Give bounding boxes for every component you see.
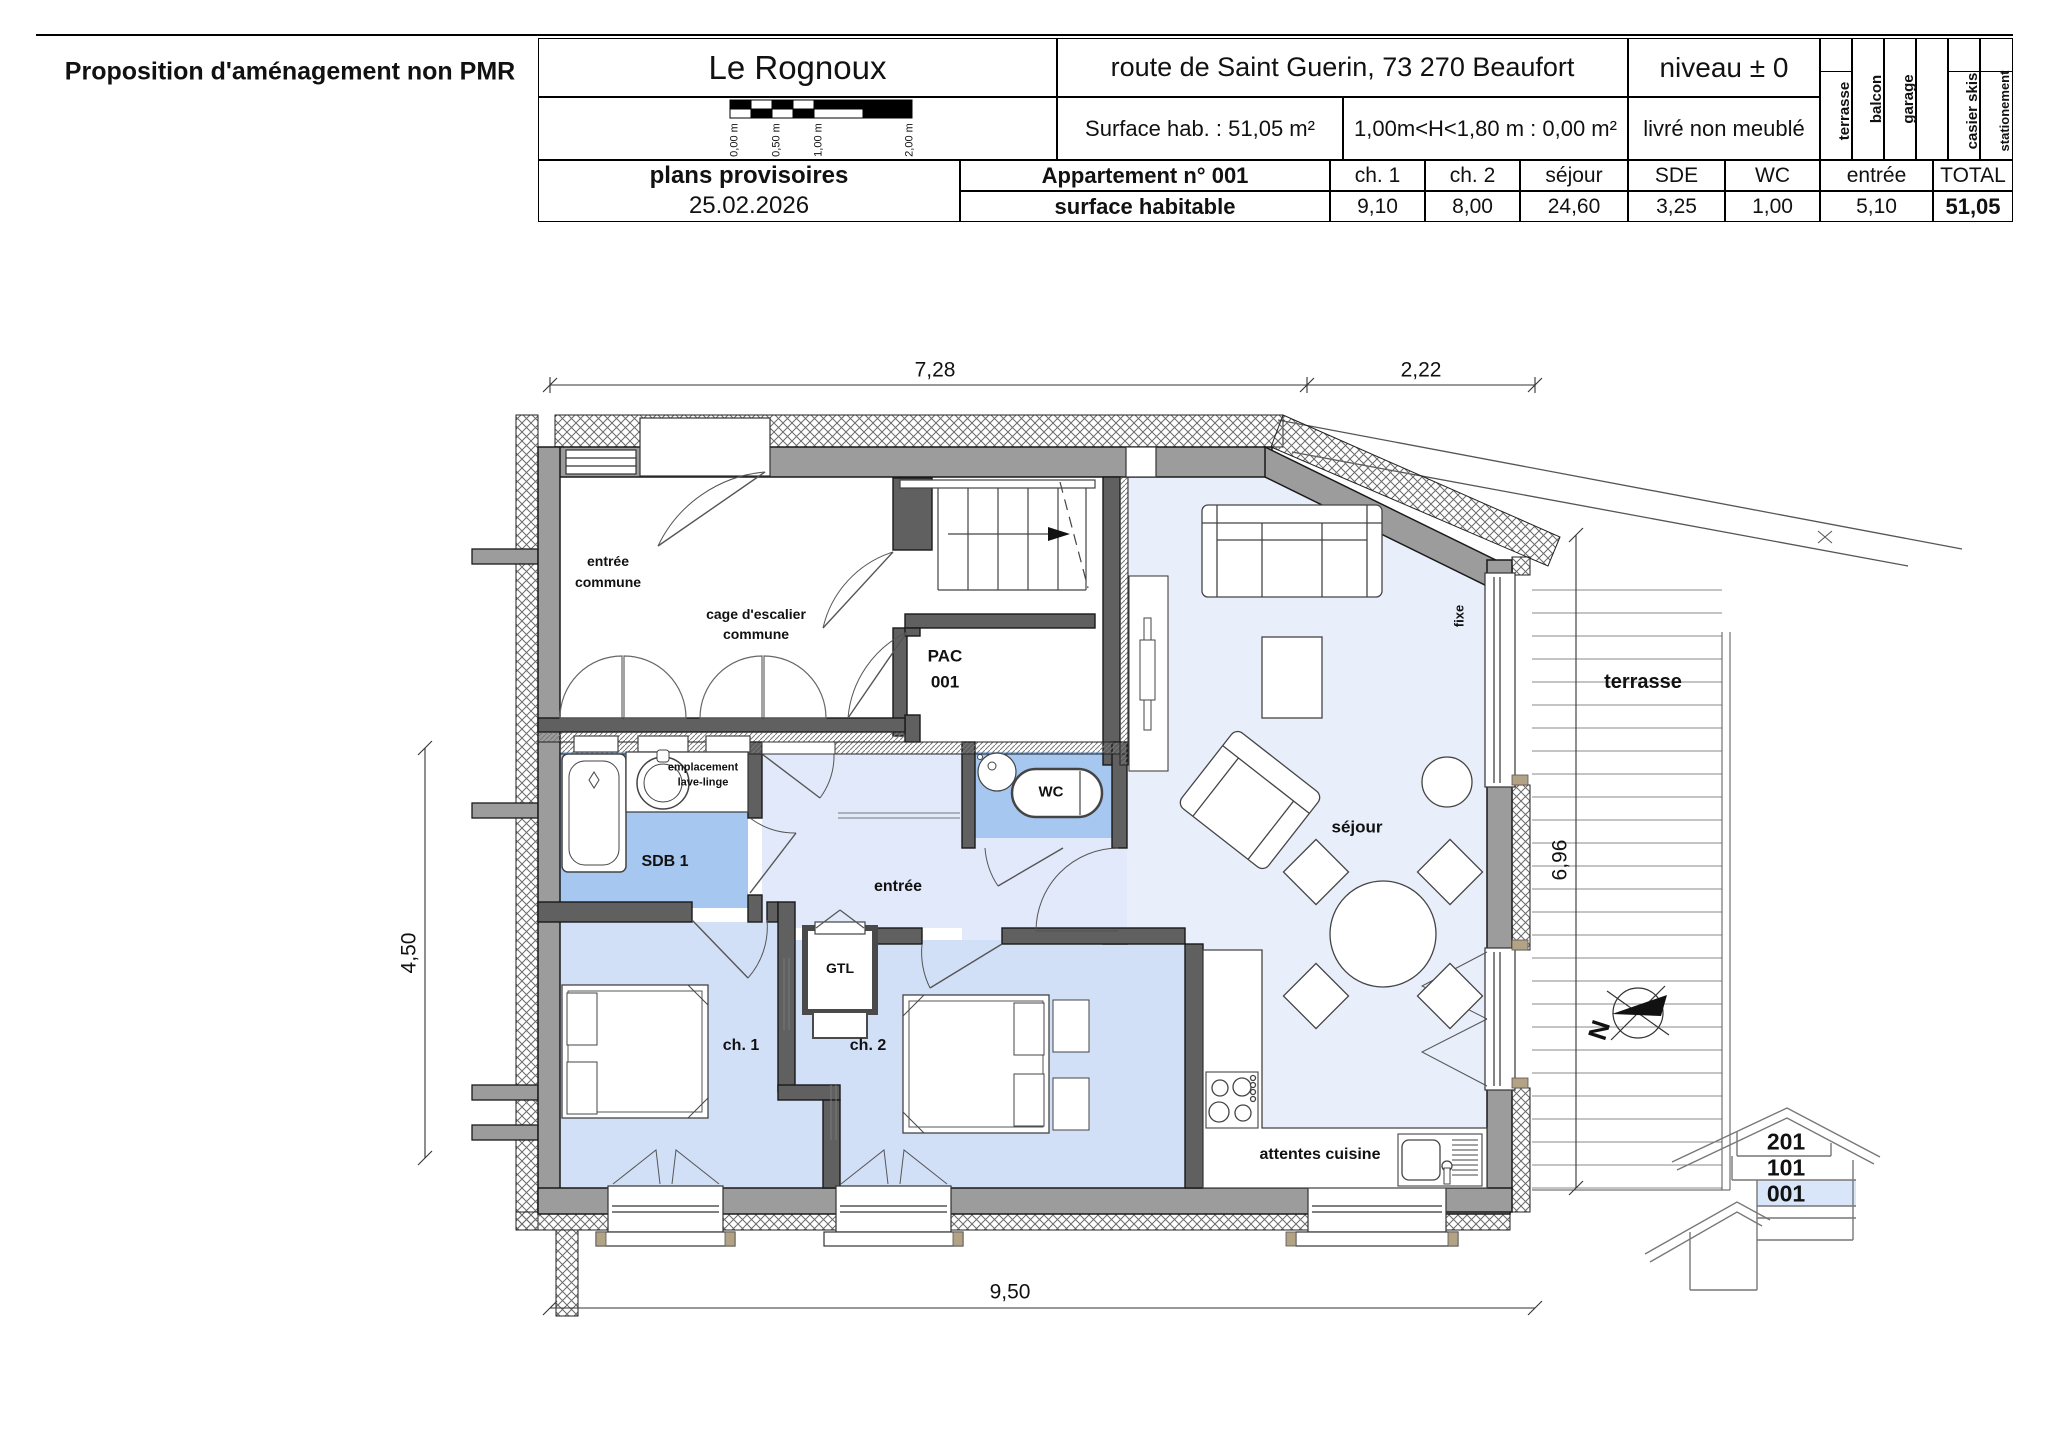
value-entree: 5,10 — [1820, 191, 1933, 222]
col-header-sde: SDE — [1628, 160, 1725, 191]
address-cell: route de Saint Guerin, 73 270 Beaufort — [1057, 38, 1628, 97]
dim-bottom: 9,50 — [990, 1282, 1031, 1303]
surface-cell: Surface hab. : 51,05 m² — [1057, 97, 1343, 160]
date-label: 25.02.2026 — [689, 192, 809, 220]
col-header-entree: entrée — [1820, 160, 1933, 191]
value-sde: 3,25 — [1628, 191, 1725, 222]
value-ch2: 8,00 — [1425, 191, 1520, 222]
amenity-col-garage: garage — [1884, 38, 1916, 160]
value-wc: 1,00 — [1725, 191, 1820, 222]
room-label-entree-commune-2: commune — [575, 575, 641, 589]
label-lave-linge-1: emplacement — [668, 763, 738, 774]
label-lave-linge-2: lave-linge — [678, 778, 729, 789]
dim-right: 6,96 — [1550, 840, 1571, 881]
scale-tick-200: 2,00 m — [905, 123, 916, 157]
sheet-top-border — [36, 34, 2013, 36]
value-total: 51,05 — [1933, 191, 2013, 222]
amenity-col-terrasse: terrasse — [1820, 38, 1852, 160]
height-rule-cell: 1,00m<H<1,80 m : 0,00 m² — [1343, 97, 1628, 160]
floor-plan-sheet: { "header": { "proposal": "Proposition d… — [0, 0, 2048, 1448]
value-sejour: 24,60 — [1520, 191, 1628, 222]
amenity-label-casier-skis: casier skis — [1964, 73, 1981, 150]
label-fixe: fixe — [1453, 605, 1466, 627]
proposal-title: Proposition d'aménagement non PMR — [65, 60, 515, 85]
scale-tick-100: 1,00 m — [814, 123, 825, 157]
room-label-wc: WC — [1039, 785, 1064, 800]
section-level-101: 101 — [1767, 1157, 1805, 1180]
status-cell: plans provisoires 25.02.2026 — [538, 160, 960, 222]
dim-left: 4,50 — [399, 933, 420, 974]
room-label-ch1: ch. 1 — [723, 1038, 759, 1054]
level-cell: niveau ± 0 — [1628, 38, 1820, 97]
dim-top-right: 2,22 — [1401, 360, 1442, 381]
amenity-divider — [1821, 71, 1851, 72]
col-header-sejour: séjour — [1520, 160, 1628, 191]
value-ch1: 9,10 — [1330, 191, 1425, 222]
room-label-pac: PAC — [928, 648, 963, 665]
col-header-total: TOTAL — [1933, 160, 2013, 191]
project-name-cell: Le Rognoux — [538, 38, 1057, 97]
room-label-ch2: ch. 2 — [850, 1038, 886, 1054]
amenity-col-empty — [1916, 38, 1948, 160]
amenity-label-garage: garage — [1900, 74, 1917, 123]
dim-top-main: 7,28 — [915, 360, 956, 381]
room-label-sdb1: SDB 1 — [641, 854, 688, 870]
room-label-entree-commune-1: entrée — [587, 554, 629, 568]
section-level-201: 201 — [1767, 1131, 1805, 1154]
label-attentes-cuisine: attentes cuisine — [1260, 1147, 1381, 1163]
room-label-cage-2: commune — [723, 627, 789, 641]
amenity-label-stationnement: stationement — [1997, 71, 2012, 152]
amenity-col-stationnement: stationement — [1980, 38, 2013, 160]
section-level-001: 001 — [1767, 1183, 1805, 1206]
delivery-cell: livré non meublé — [1628, 97, 1820, 160]
status-label: plans provisoires — [650, 162, 849, 190]
col-header-wc: WC — [1725, 160, 1820, 191]
room-label-gtl: GTL — [826, 961, 854, 975]
amenity-label-terrasse: terrasse — [1836, 82, 1853, 140]
room-label-pac-num: 001 — [931, 674, 959, 691]
room-label-terrasse: terrasse — [1604, 672, 1682, 692]
north-arrow-icon — [1607, 986, 1669, 1040]
col-header-ch1: ch. 1 — [1330, 160, 1425, 191]
scale-bar-cell — [538, 97, 1057, 160]
room-label-sejour: séjour — [1331, 819, 1382, 836]
amenity-col-balcon: balcon — [1852, 38, 1884, 160]
apartment-number-cell: Appartement n° 001 — [960, 160, 1330, 191]
room-label-cage-1: cage d'escalier — [706, 607, 806, 621]
amenity-col-casier-skis: casier skis — [1948, 38, 1980, 160]
col-header-ch2: ch. 2 — [1425, 160, 1520, 191]
surface-row-label-cell: surface habitable — [960, 191, 1330, 222]
room-label-entree: entrée — [874, 879, 922, 895]
scale-tick-050: 0,50 m — [772, 123, 783, 157]
building-section-icon — [1645, 1108, 1880, 1290]
amenity-label-balcon: balcon — [1868, 75, 1885, 123]
scale-tick-0: 0,00 m — [730, 123, 741, 157]
